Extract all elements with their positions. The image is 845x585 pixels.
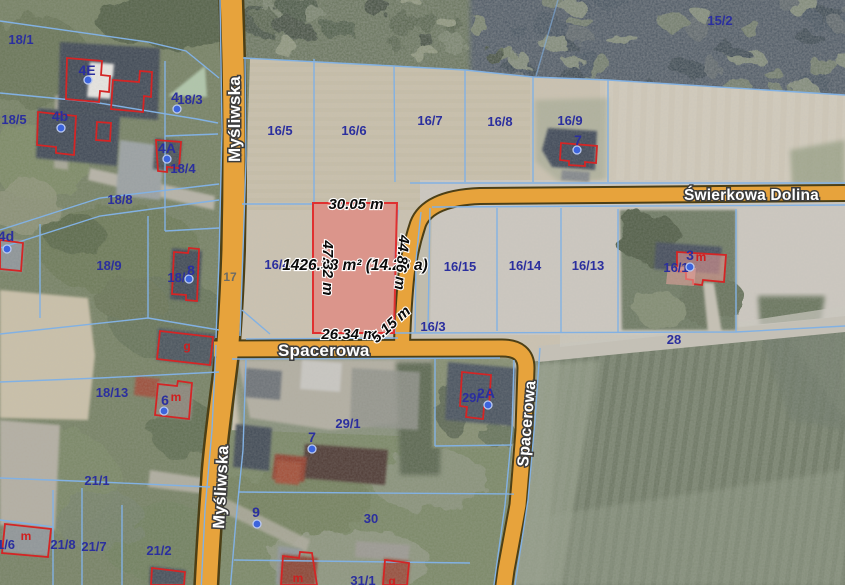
svg-text:16/6: 16/6 <box>341 123 366 138</box>
svg-text:18/13: 18/13 <box>96 385 129 400</box>
svg-text:7: 7 <box>574 132 582 148</box>
svg-text:Spacerowa: Spacerowa <box>278 341 370 360</box>
svg-text:16/5: 16/5 <box>267 123 292 138</box>
svg-text:18/1: 18/1 <box>8 32 33 47</box>
svg-text:18/5: 18/5 <box>1 112 26 127</box>
svg-text:16/15: 16/15 <box>444 259 477 274</box>
svg-text:21/8: 21/8 <box>50 537 75 552</box>
svg-text:21/7: 21/7 <box>81 539 106 554</box>
svg-text:4A: 4A <box>158 140 176 156</box>
svg-text:m: m <box>696 250 707 264</box>
svg-text:g: g <box>183 339 190 353</box>
svg-text:9: 9 <box>252 504 260 520</box>
svg-text:8: 8 <box>187 262 195 278</box>
svg-text:16/14: 16/14 <box>509 258 542 273</box>
svg-text:16/13: 16/13 <box>572 258 605 273</box>
svg-text:15/2: 15/2 <box>707 13 732 28</box>
svg-text:28: 28 <box>667 332 681 347</box>
svg-text:17: 17 <box>223 270 237 284</box>
svg-text:31/1: 31/1 <box>350 573 375 585</box>
svg-text:47.32 m: 47.32 m <box>319 239 336 295</box>
svg-text:18/3: 18/3 <box>177 92 202 107</box>
svg-text:18/9: 18/9 <box>96 258 121 273</box>
svg-text:4: 4 <box>171 89 179 105</box>
svg-text:4d: 4d <box>0 228 14 244</box>
svg-text:g: g <box>388 574 395 585</box>
svg-text:18/4: 18/4 <box>170 161 196 176</box>
svg-text:16/1: 16/1 <box>663 260 688 275</box>
svg-text:6: 6 <box>161 392 169 408</box>
svg-text:4E: 4E <box>78 62 95 78</box>
svg-text:1/6: 1/6 <box>0 537 15 552</box>
svg-text:7: 7 <box>308 429 316 445</box>
svg-text:18/8: 18/8 <box>107 192 132 207</box>
svg-text:m: m <box>293 571 304 585</box>
svg-text:30: 30 <box>364 511 378 526</box>
svg-text:m: m <box>21 529 32 543</box>
svg-text:21/1: 21/1 <box>84 473 109 488</box>
svg-text:m: m <box>171 390 182 404</box>
svg-text:30.05 m: 30.05 m <box>328 196 383 213</box>
svg-text:16/3: 16/3 <box>420 319 445 334</box>
svg-text:16/7: 16/7 <box>417 113 442 128</box>
svg-text:Świerkowa Dolina: Świerkowa Dolina <box>684 186 819 204</box>
svg-text:29/1: 29/1 <box>335 416 360 431</box>
svg-text:2A: 2A <box>477 385 495 401</box>
svg-text:4b: 4b <box>52 108 68 124</box>
svg-text:3: 3 <box>686 247 694 263</box>
svg-text:Myśliwska: Myśliwska <box>225 76 244 162</box>
svg-text:16/8: 16/8 <box>487 114 512 129</box>
svg-text:16/9: 16/9 <box>557 113 582 128</box>
svg-text:21/2: 21/2 <box>146 543 171 558</box>
